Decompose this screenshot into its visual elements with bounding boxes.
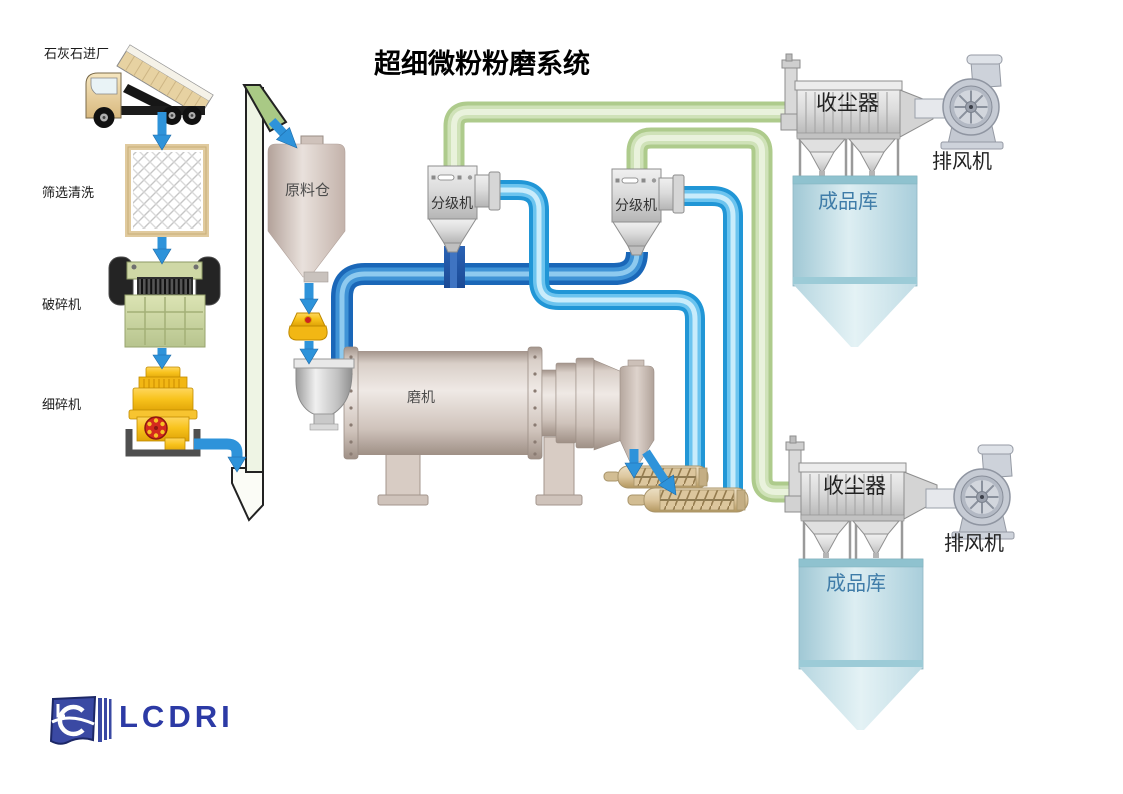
screw-conveyor-lower xyxy=(628,488,748,512)
label-crusher: 破碎机 xyxy=(42,298,81,312)
screening-mesh xyxy=(128,147,206,234)
dust-collector-top xyxy=(781,54,933,177)
lcdri-logo-text: LCDRI xyxy=(119,701,234,734)
label-raw-material-silo: 原料仓 xyxy=(285,184,330,200)
label-dust-collector-bottom: 收尘器 xyxy=(823,475,886,497)
label-screening: 筛选清洗 xyxy=(42,186,94,200)
raw-material-silo xyxy=(268,136,345,282)
exhaust-fan-bottom xyxy=(926,445,1014,539)
label-mill: 磨机 xyxy=(407,392,435,407)
crusher xyxy=(109,257,220,347)
lcdri-logo-mark xyxy=(51,697,112,744)
rotary-feeder xyxy=(289,313,327,340)
fine-crusher xyxy=(129,367,197,453)
label-classifier-1: 分级机 xyxy=(431,198,473,213)
flow-arrow-to-elevator xyxy=(194,444,246,472)
page-title: 超细微粉粉磨系统 xyxy=(374,50,590,78)
label-product-silo-bottom: 成品库 xyxy=(826,574,886,595)
label-product-silo-top: 成品库 xyxy=(818,192,878,213)
label-exhaust-fan-bottom: 排风机 xyxy=(944,534,1004,555)
label-limestone-entry: 石灰石进厂 xyxy=(44,47,109,61)
label-exhaust-fan-top: 排风机 xyxy=(932,152,992,173)
exhaust-fan-top xyxy=(915,55,1003,149)
label-classifier-2: 分级机 xyxy=(615,200,657,215)
label-fine-crusher: 细碎机 xyxy=(42,398,81,412)
process-flow-diagram xyxy=(0,0,1123,794)
diagram-canvas: 超细微粉粉磨系统 石灰石进厂 筛选清洗 破碎机 细碎机 原料仓 分级机 分级机 … xyxy=(0,0,1123,794)
label-dust-collector-top: 收尘器 xyxy=(816,92,879,114)
